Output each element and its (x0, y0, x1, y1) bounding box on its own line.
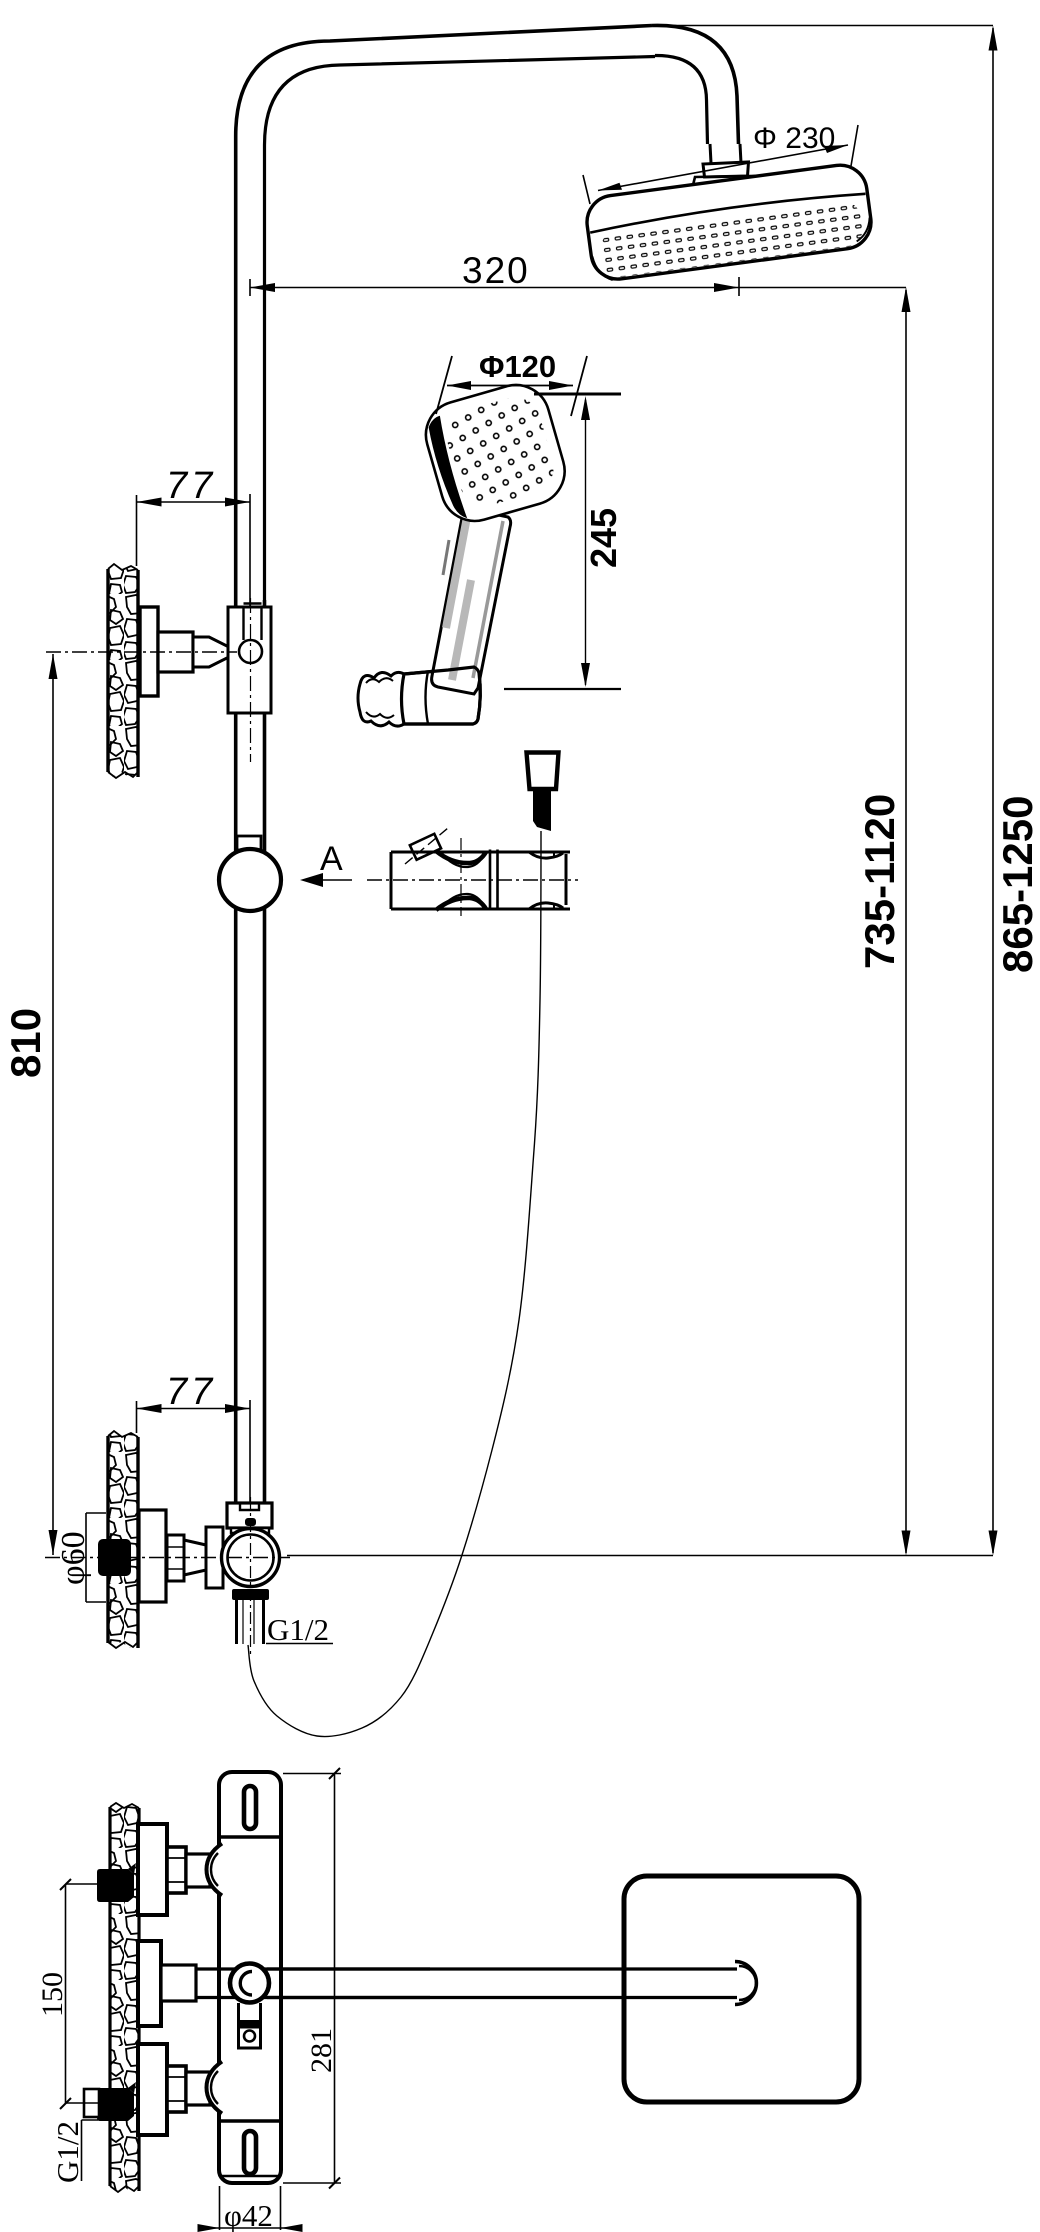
svg-text:G1/2: G1/2 (267, 1612, 329, 1647)
svg-text:77: 77 (166, 465, 216, 507)
svg-text:A: A (320, 840, 343, 878)
svg-text:810: 810 (2, 1008, 49, 1078)
svg-text:150: 150 (36, 1972, 69, 2017)
svg-text:281: 281 (305, 2028, 338, 2073)
svg-text:245: 245 (583, 508, 624, 568)
svg-text:320: 320 (462, 250, 530, 291)
svg-text:Φ120: Φ120 (479, 349, 556, 384)
svg-text:G1/2: G1/2 (50, 2121, 85, 2183)
svg-text:865-1250: 865-1250 (994, 796, 1040, 974)
svg-text:77: 77 (166, 1371, 216, 1413)
svg-text:φ42: φ42 (224, 2198, 273, 2232)
svg-text:Φ 230: Φ 230 (753, 122, 835, 155)
svg-text:735-1120: 735-1120 (856, 794, 903, 969)
